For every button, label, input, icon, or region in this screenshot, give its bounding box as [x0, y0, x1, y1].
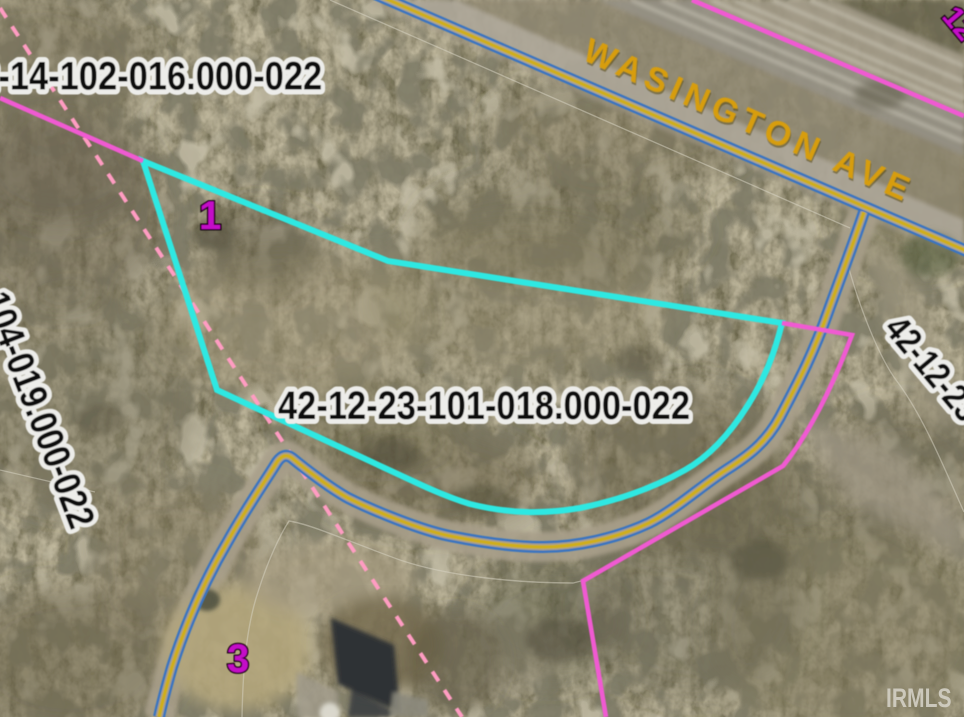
svg-text:3: 3 — [227, 637, 249, 681]
svg-text:42-14-102-016.000-022: 42-14-102-016.000-022 — [0, 53, 322, 98]
svg-text:1: 1 — [199, 194, 221, 238]
svg-text:IRMLS: IRMLS — [886, 684, 951, 714]
svg-text:42-12-23-101-018.000-022: 42-12-23-101-018.000-022 — [278, 383, 690, 428]
